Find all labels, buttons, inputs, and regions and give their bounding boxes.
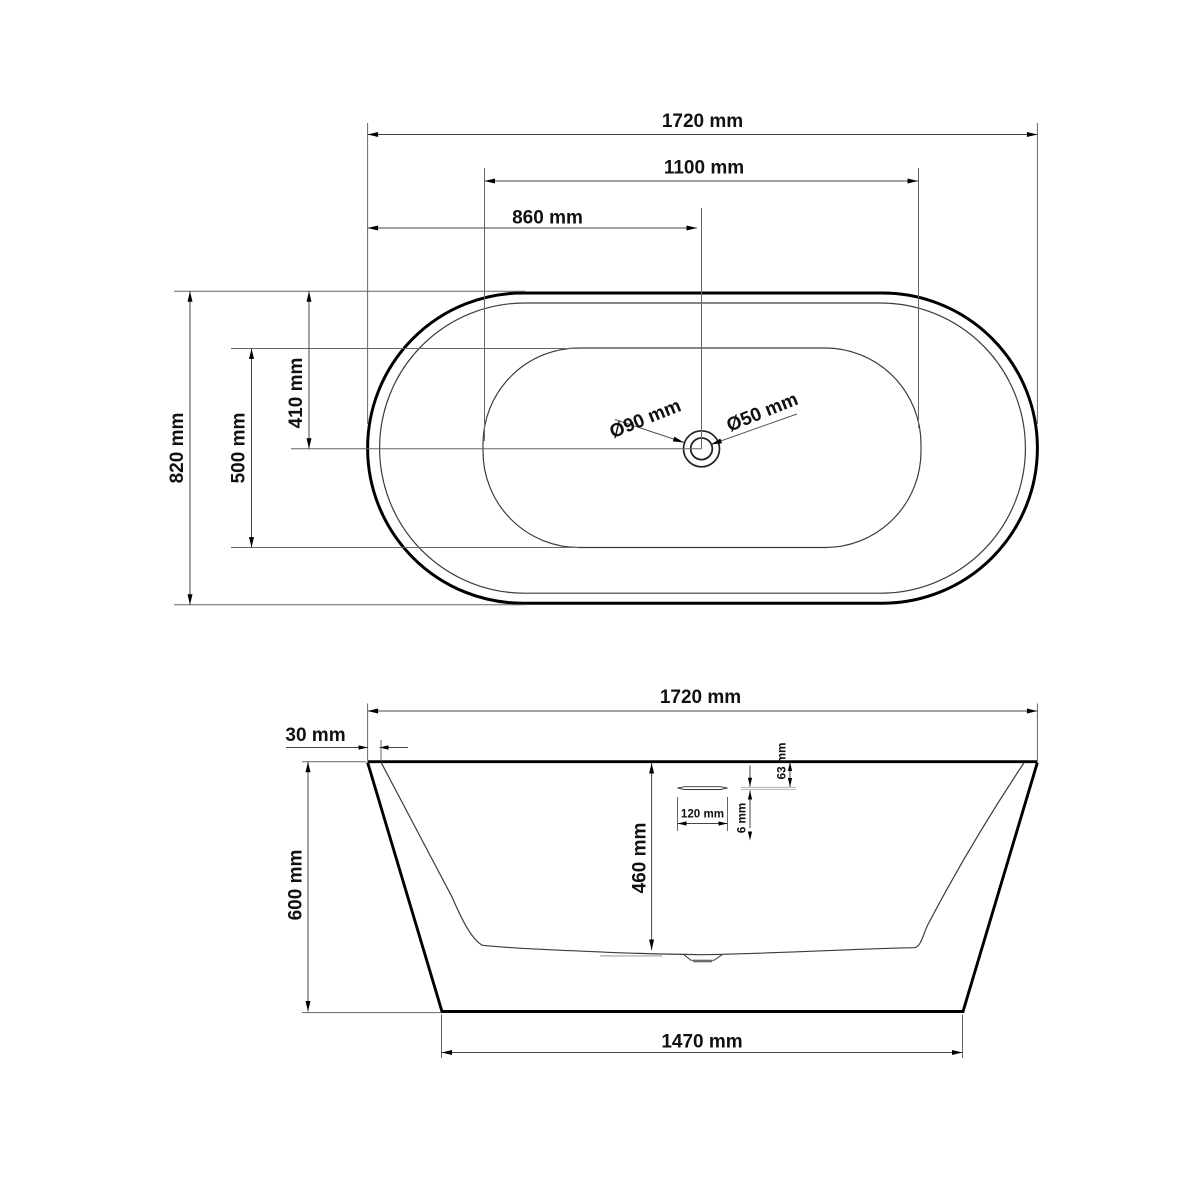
svg-text:120 mm: 120 mm <box>681 808 724 821</box>
svg-text:600 mm: 600 mm <box>286 850 307 921</box>
svg-text:820 mm: 820 mm <box>167 413 188 484</box>
svg-text:460 mm: 460 mm <box>630 823 651 894</box>
svg-text:63 mm: 63 mm <box>776 743 789 780</box>
svg-text:1720 mm: 1720 mm <box>662 111 743 132</box>
svg-text:30 mm: 30 mm <box>285 725 345 746</box>
svg-text:1100 mm: 1100 mm <box>664 158 744 179</box>
svg-text:860 mm: 860 mm <box>512 208 583 229</box>
svg-text:410 mm: 410 mm <box>286 358 307 429</box>
svg-text:6 mm: 6 mm <box>736 803 749 833</box>
svg-text:500 mm: 500 mm <box>229 413 250 484</box>
svg-text:1720 mm: 1720 mm <box>660 687 741 708</box>
svg-text:1470 mm: 1470 mm <box>661 1032 742 1053</box>
